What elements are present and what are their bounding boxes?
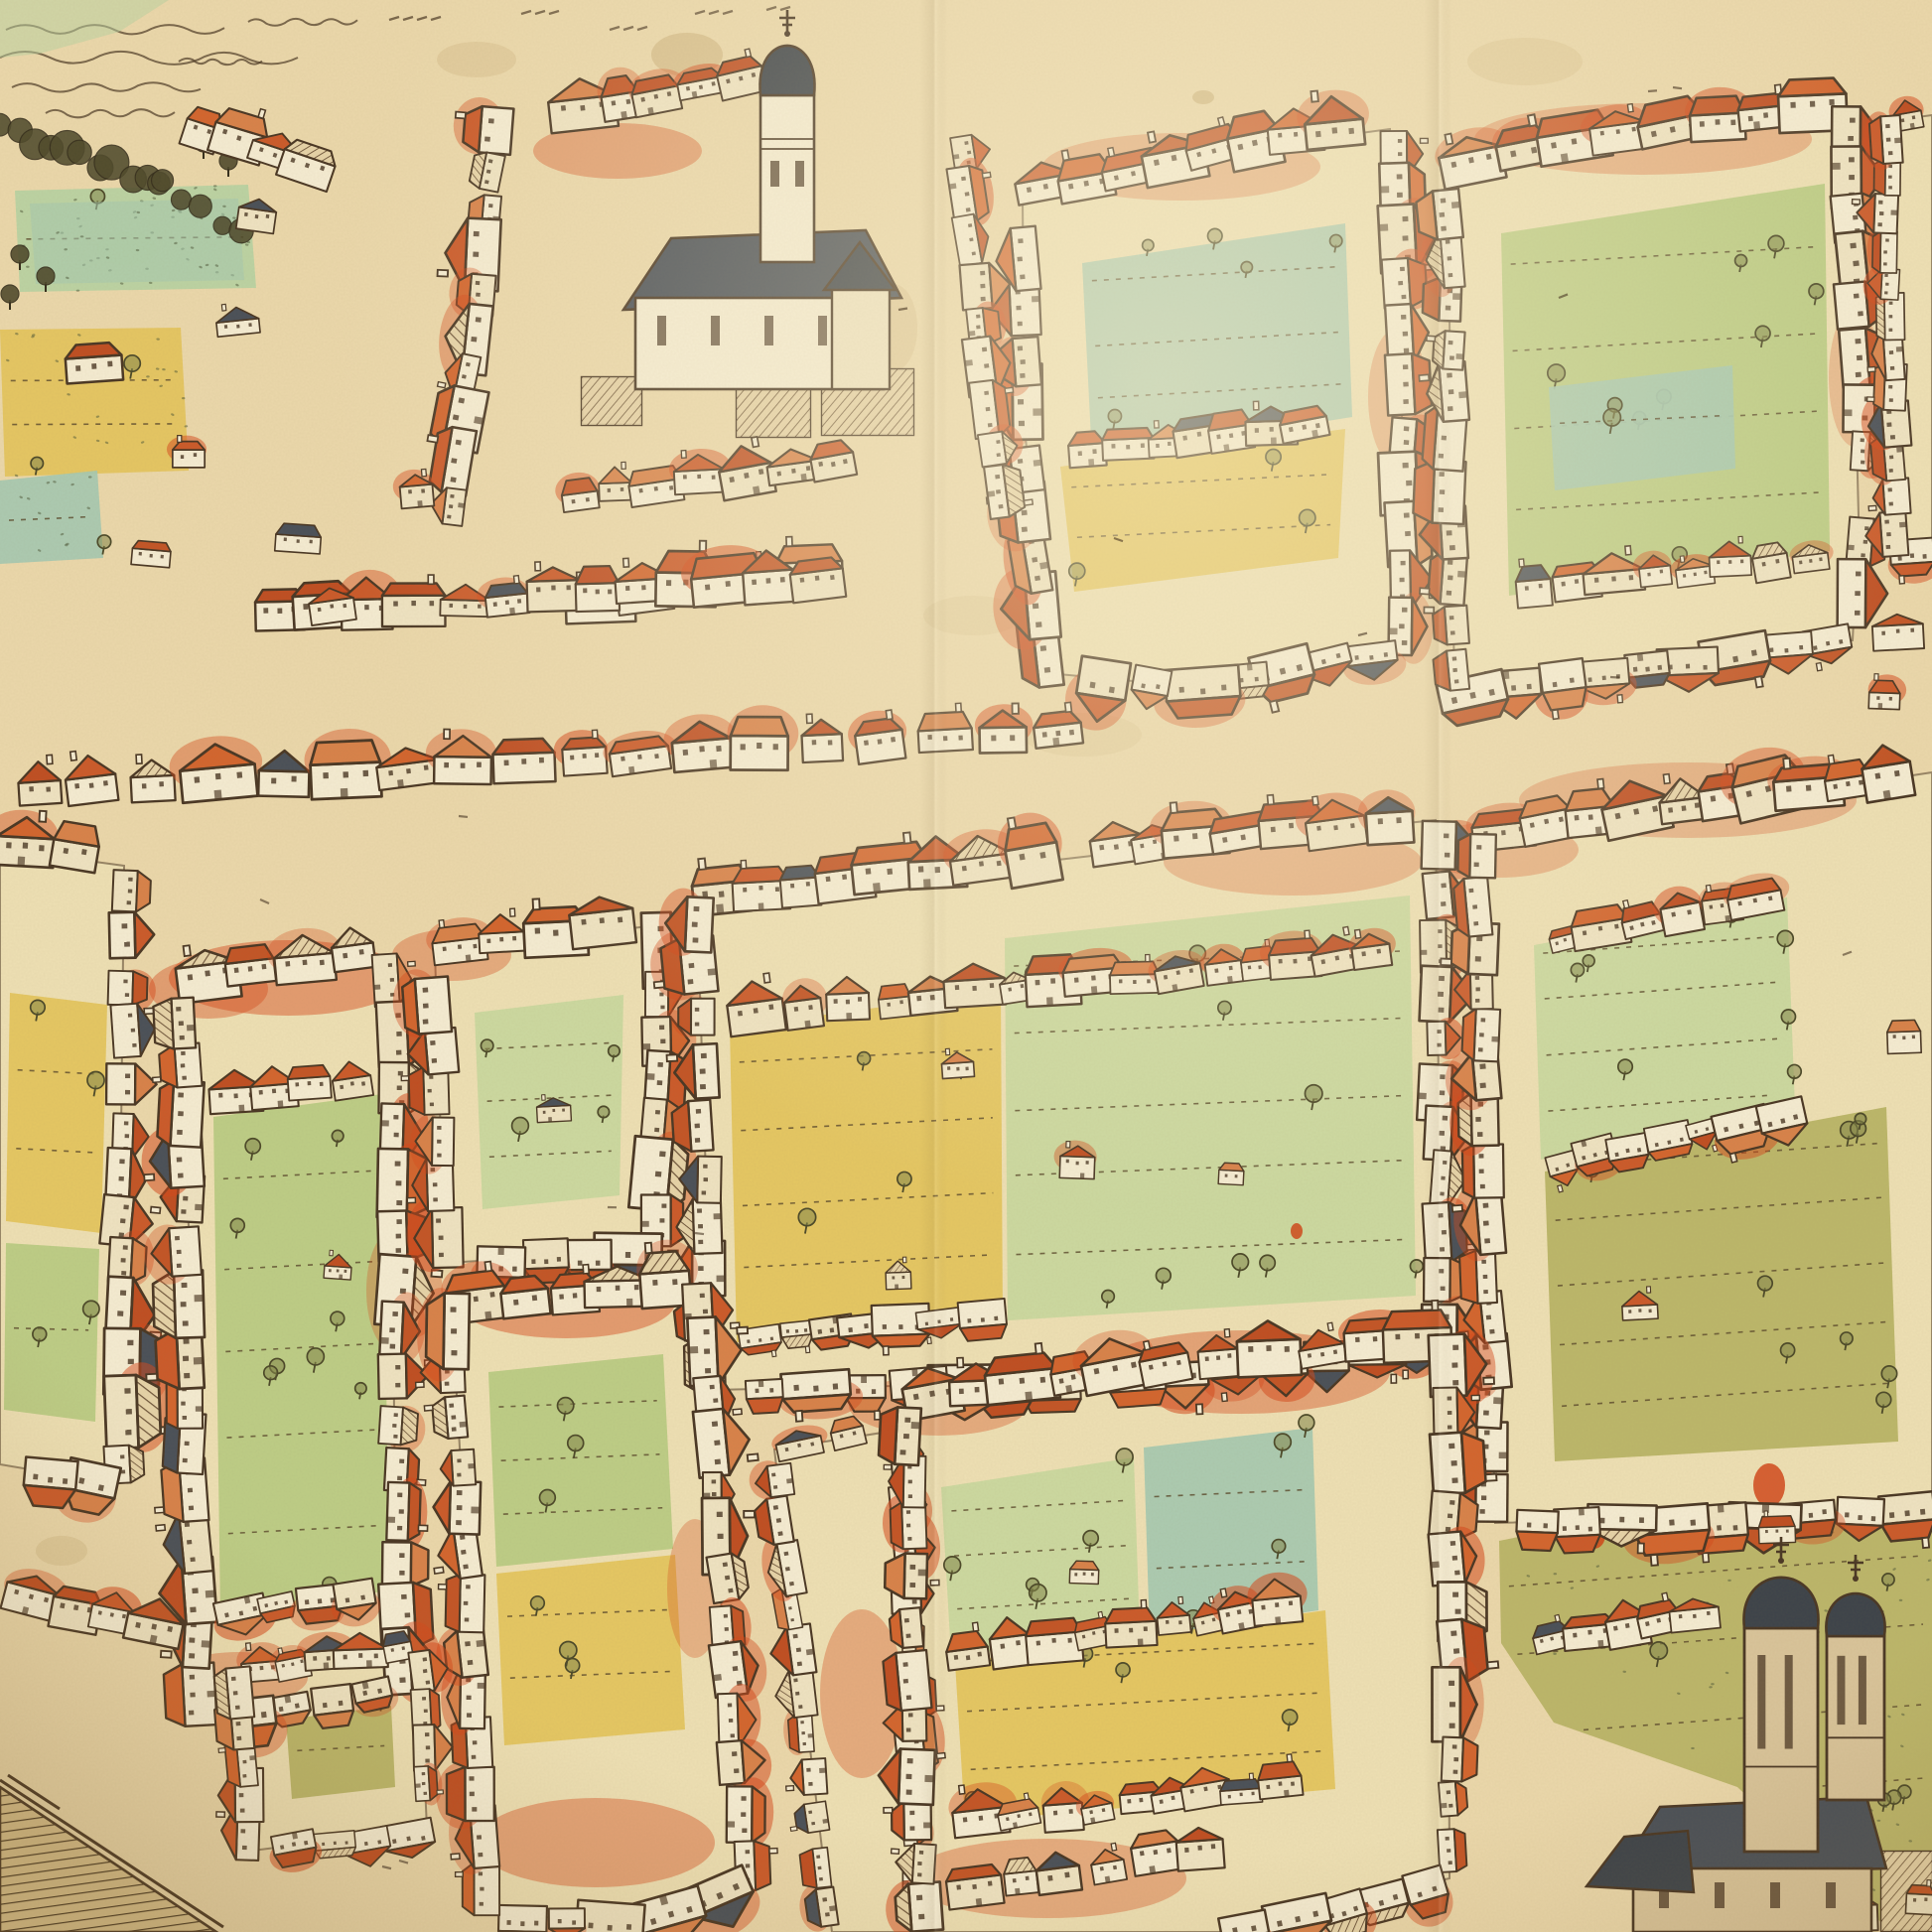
ink-speck — [1610, 677, 1619, 678]
ink-speck — [1673, 87, 1682, 88]
ink-speck — [1648, 90, 1657, 91]
fold-crease — [919, 0, 947, 1932]
ink-speck — [898, 309, 907, 310]
ink-speck — [459, 816, 468, 817]
grunge-layer — [0, 0, 1932, 1932]
ink-speck — [695, 1233, 704, 1234]
vignette-overlay — [0, 0, 1932, 1932]
fold-crease — [1424, 0, 1451, 1932]
map-canvas — [0, 0, 1932, 1932]
antique-city-map — [0, 0, 1932, 1932]
